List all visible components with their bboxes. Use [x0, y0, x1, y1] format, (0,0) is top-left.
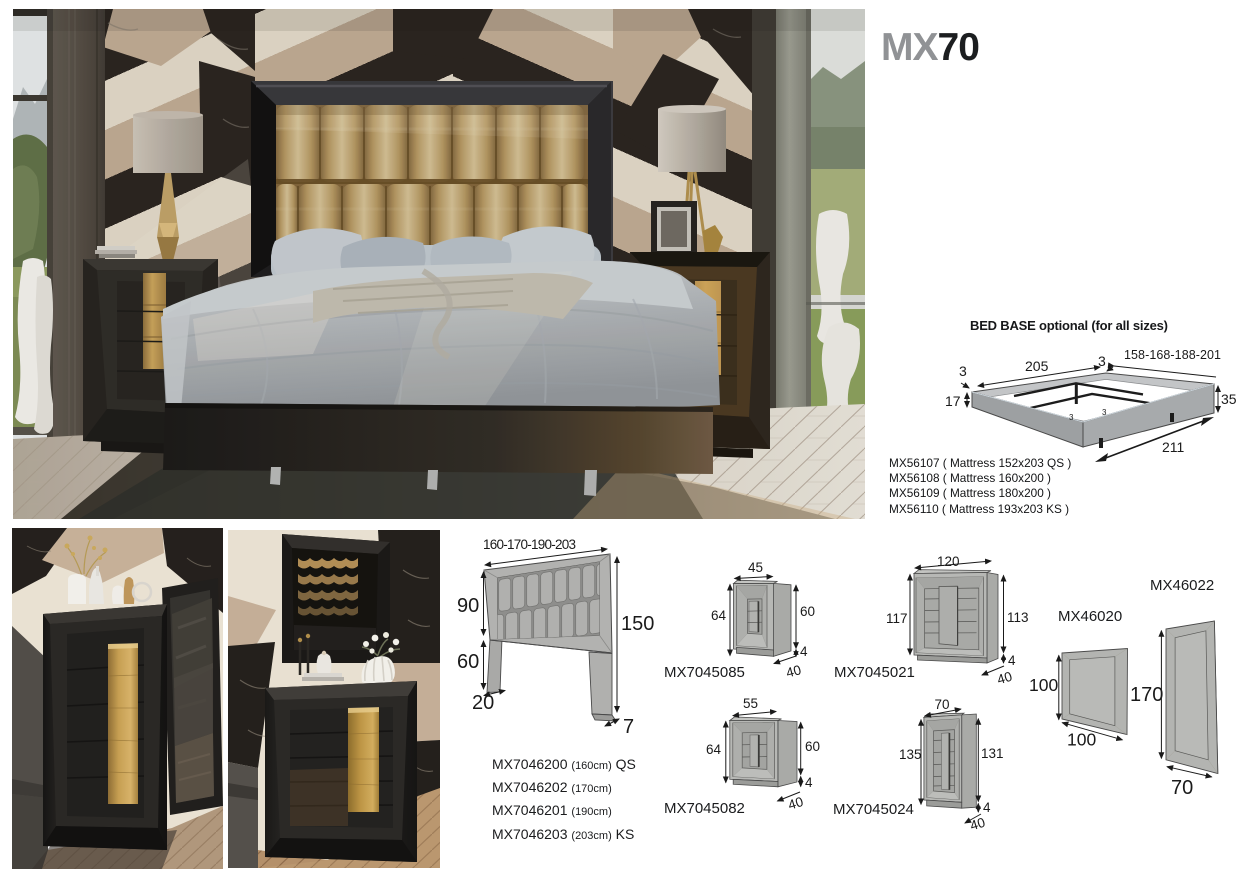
svg-text:170: 170	[1130, 684, 1163, 706]
svg-text:158-168-188-201: 158-168-188-201	[1124, 348, 1221, 362]
svg-text:90: 90	[457, 595, 479, 617]
svg-text:40: 40	[784, 662, 802, 680]
svg-text:40: 40	[995, 669, 1014, 688]
svg-text:100: 100	[1029, 675, 1058, 695]
svg-text:113: 113	[1007, 610, 1029, 625]
svg-text:60: 60	[805, 739, 820, 754]
svg-text:40: 40	[968, 815, 987, 834]
svg-text:17: 17	[945, 393, 961, 409]
svg-text:4: 4	[983, 800, 991, 815]
svg-text:70: 70	[935, 697, 950, 712]
svg-text:3: 3	[1102, 408, 1107, 417]
svg-text:3: 3	[959, 363, 967, 379]
svg-text:117: 117	[886, 611, 908, 626]
svg-text:205: 205	[1025, 358, 1049, 374]
svg-text:4: 4	[805, 775, 813, 790]
svg-text:150: 150	[621, 613, 654, 635]
svg-text:7: 7	[623, 716, 634, 738]
svg-text:211: 211	[1162, 439, 1185, 455]
svg-text:135: 135	[899, 747, 922, 762]
svg-text:120: 120	[937, 554, 960, 569]
svg-text:20: 20	[472, 692, 494, 714]
svg-text:70: 70	[1171, 777, 1193, 799]
svg-text:3: 3	[1069, 413, 1074, 422]
svg-text:45: 45	[748, 560, 763, 575]
svg-text:100: 100	[1067, 730, 1096, 750]
svg-text:55: 55	[743, 696, 758, 711]
svg-text:4: 4	[800, 644, 808, 659]
svg-text:60: 60	[457, 651, 479, 673]
svg-text:131: 131	[981, 746, 1004, 761]
svg-text:35: 35	[1221, 391, 1237, 407]
svg-text:4: 4	[1008, 653, 1016, 668]
svg-text:160-170-190-203: 160-170-190-203	[483, 537, 576, 552]
svg-text:64: 64	[706, 742, 722, 757]
svg-text:3: 3	[1098, 353, 1106, 369]
svg-text:60: 60	[800, 604, 815, 619]
svg-text:64: 64	[711, 608, 727, 623]
